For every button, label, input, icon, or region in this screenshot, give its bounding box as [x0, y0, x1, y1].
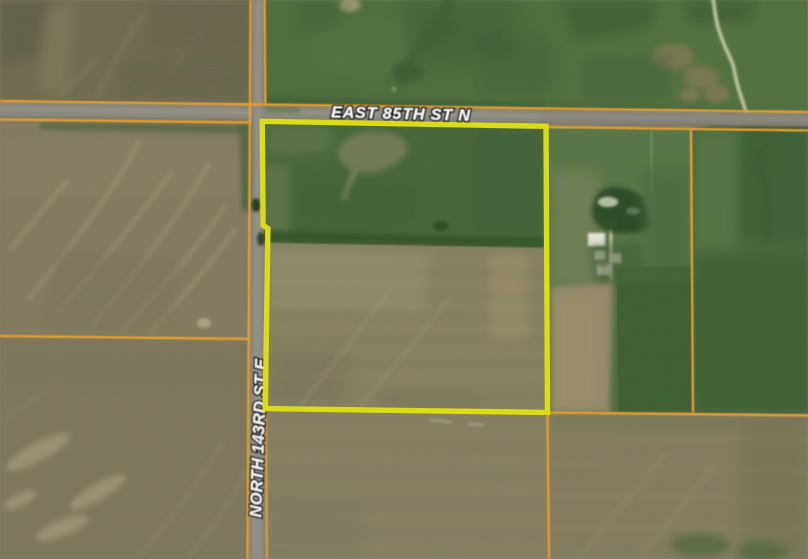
svg-text:EAST 85TH ST N: EAST 85TH ST N	[331, 104, 471, 124]
